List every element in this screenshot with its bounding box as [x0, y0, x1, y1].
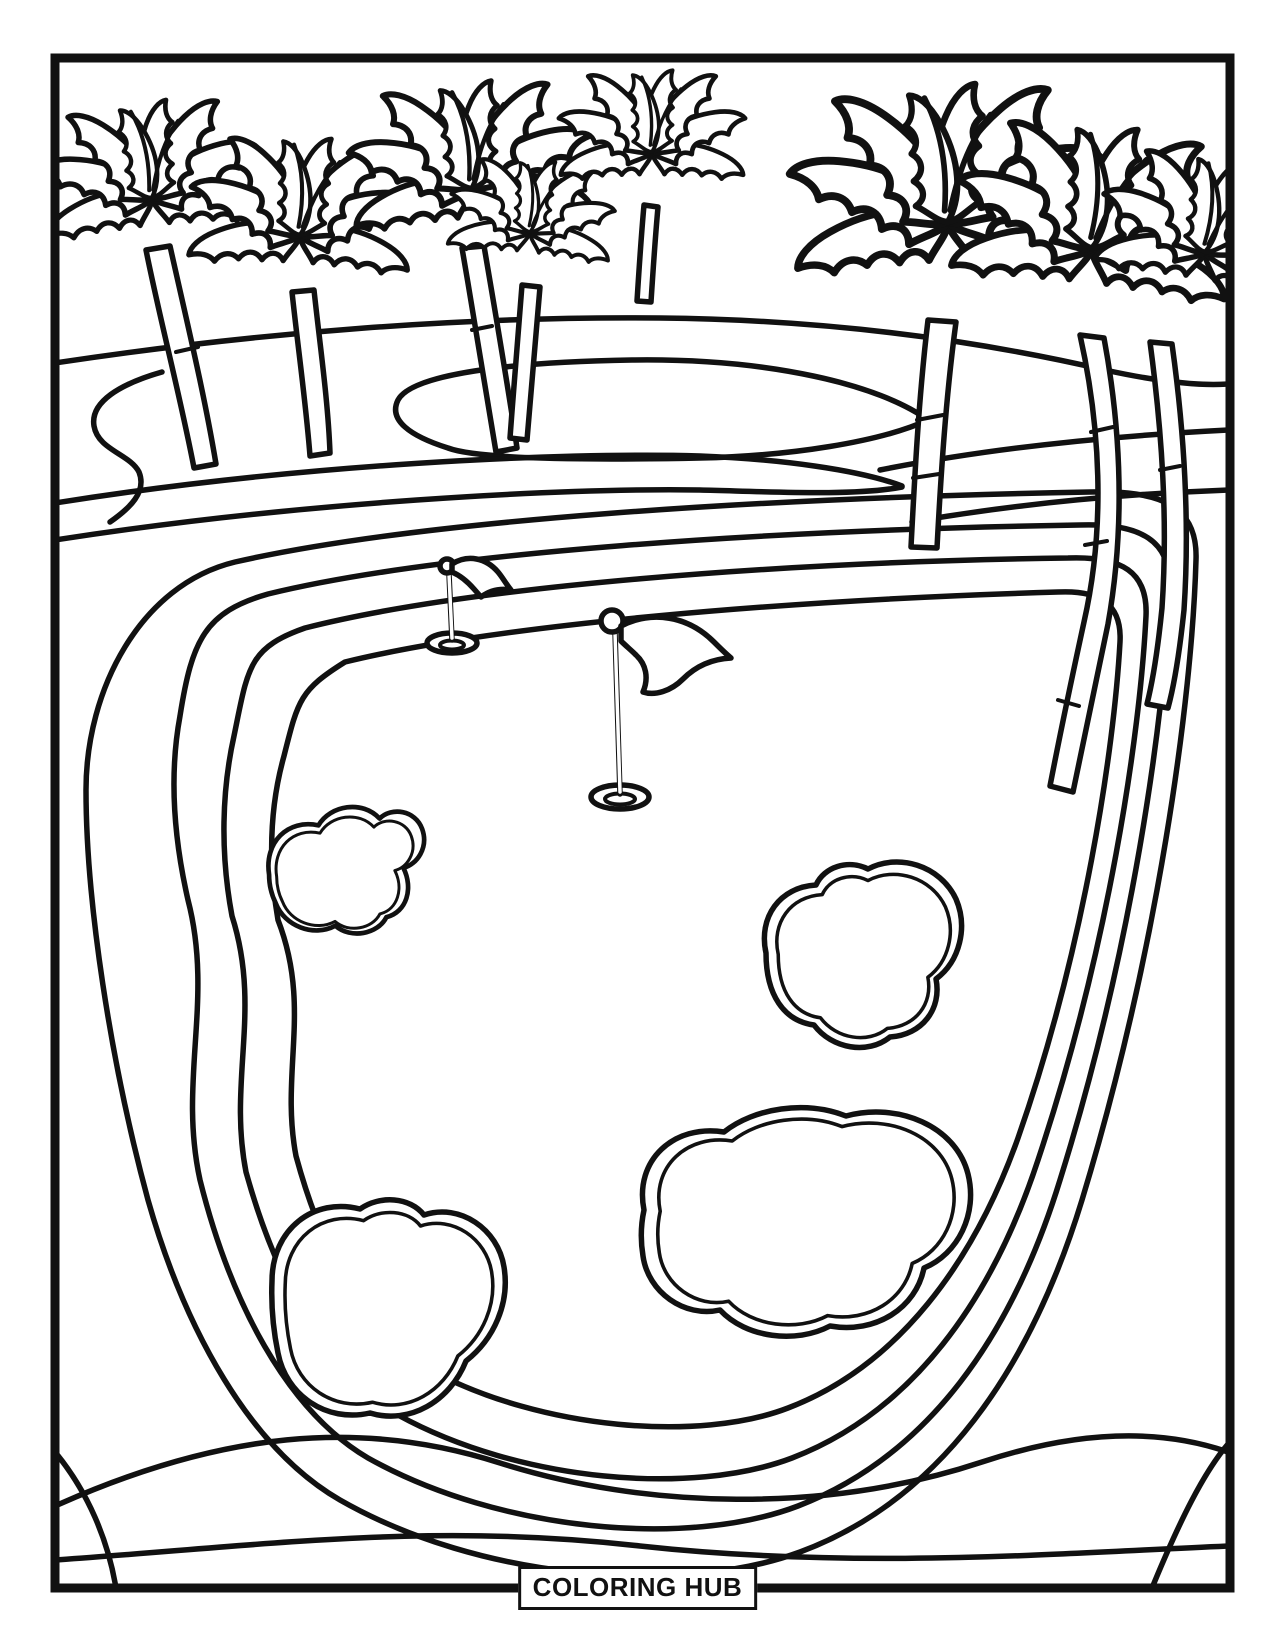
sand-bunker-3	[272, 1200, 506, 1416]
golf-course-illustration	[0, 0, 1275, 1650]
golf-flag-large	[591, 610, 731, 809]
sand-bunkers	[268, 807, 970, 1416]
golf-flag-small	[427, 558, 511, 653]
flag-pennant	[621, 617, 731, 693]
sand-bunker-1	[268, 807, 424, 933]
sand-bunker-4	[641, 1108, 970, 1337]
watermark-text: COLORING HUB	[533, 1572, 743, 1602]
horizon-and-upper-bands	[55, 318, 1228, 540]
bottom-wave-line-1	[55, 1436, 1228, 1506]
distant-sand-patch	[396, 360, 928, 459]
flag-pennant	[452, 558, 511, 597]
bottom-left-corner-line	[55, 1452, 116, 1588]
coloring-hub-watermark: COLORING HUB	[518, 1566, 758, 1610]
sand-bunker-2	[764, 862, 961, 1047]
left-pocket-line	[94, 372, 162, 522]
bottom-right-corner-line	[1152, 1444, 1228, 1588]
fairway-band-line-2	[55, 487, 902, 540]
palm-tree-6	[777, 71, 1116, 548]
bottom-wave-line-2	[55, 1536, 1228, 1560]
coloring-page: COLORING HUB	[0, 0, 1275, 1650]
